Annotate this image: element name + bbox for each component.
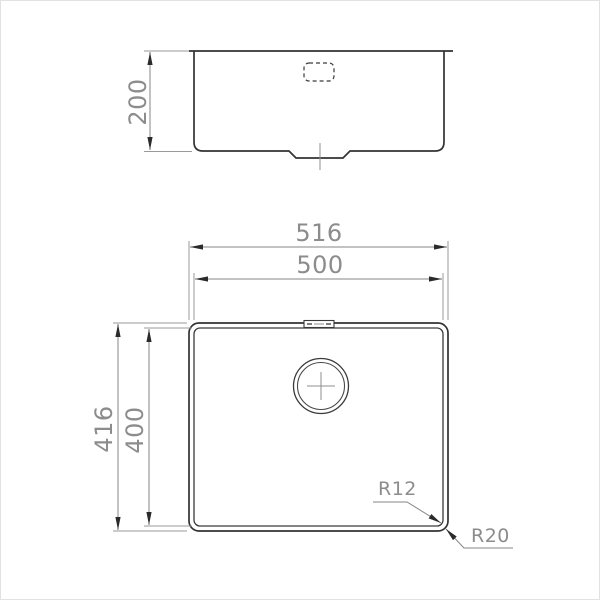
leader-r12: [373, 502, 441, 523]
front-bowl-outline: [194, 51, 444, 158]
plan-view: 516 500 416 400 R12 R20: [90, 219, 513, 548]
radius-r20-label: R20: [471, 525, 510, 547]
radius-r12-label: R12: [378, 478, 417, 500]
dim-500-label: 500: [296, 251, 343, 279]
front-view: 200: [124, 51, 453, 170]
dim-400-label: 400: [121, 406, 149, 453]
dim-200-label: 200: [124, 78, 152, 125]
drawing-sheet: 200 516 500: [0, 0, 600, 600]
front-overflow-hole-hidden: [304, 63, 334, 81]
dim-516-label: 516: [295, 219, 342, 247]
sink-technical-drawing: 200 516 500: [1, 1, 599, 599]
dim-416-label: 416: [90, 405, 118, 452]
